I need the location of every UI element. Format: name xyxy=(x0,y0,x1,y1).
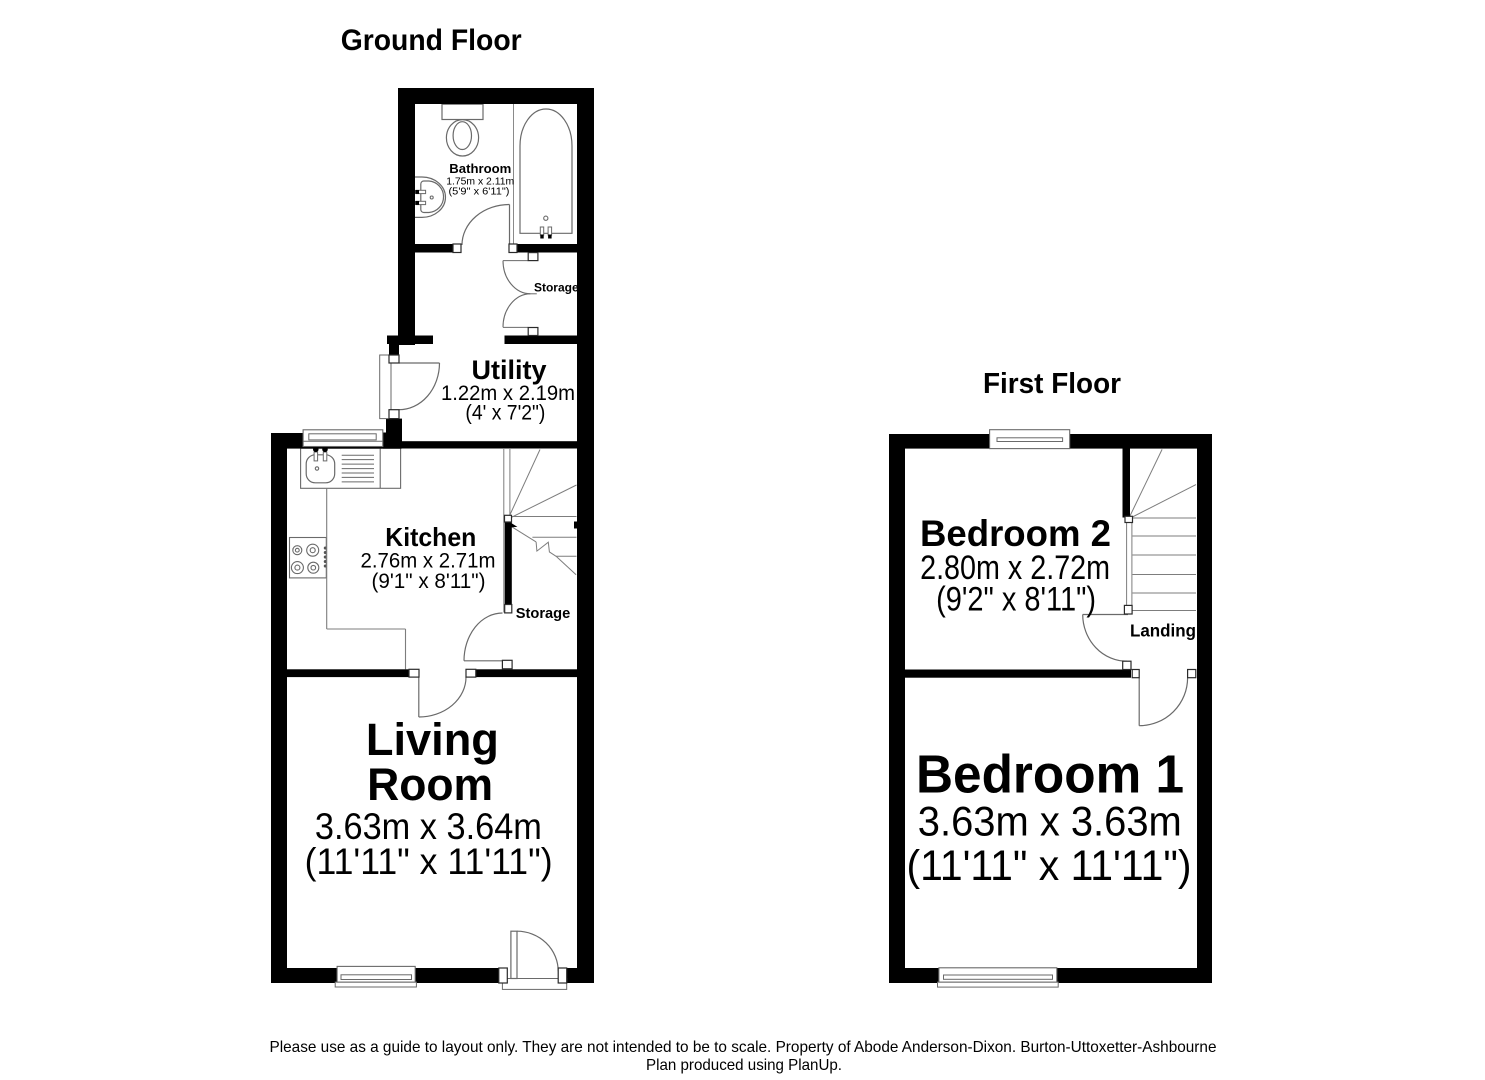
svg-text:Please use as a guide to layou: Please use as a guide to layout only. Th… xyxy=(270,1039,1217,1056)
svg-text:3.63m x 3.63m: 3.63m x 3.63m xyxy=(918,798,1182,845)
svg-text:(5'9" x 6'11"): (5'9" x 6'11") xyxy=(449,185,510,197)
svg-text:Room: Room xyxy=(367,759,493,810)
svg-text:First Floor: First Floor xyxy=(983,368,1121,400)
svg-text:(9'1" x 8'11"): (9'1" x 8'11") xyxy=(372,570,486,593)
svg-text:Landing: Landing xyxy=(1130,620,1196,640)
svg-text:Kitchen: Kitchen xyxy=(385,524,476,552)
svg-text:(9'2" x 8'11"): (9'2" x 8'11") xyxy=(936,581,1096,619)
svg-text:Ground Floor: Ground Floor xyxy=(341,24,522,57)
svg-text:Bedroom 2: Bedroom 2 xyxy=(920,512,1111,554)
svg-text:Utility: Utility xyxy=(472,355,547,385)
svg-text:Storage: Storage xyxy=(534,281,579,295)
svg-text:Storage: Storage xyxy=(516,606,571,622)
svg-text:Bathroom: Bathroom xyxy=(449,161,511,176)
svg-text:(11'11" x 11'11"): (11'11" x 11'11") xyxy=(907,842,1192,889)
svg-text:(11'11" x 11'11"): (11'11" x 11'11") xyxy=(305,841,553,882)
svg-text:(4' x 7'2"): (4' x 7'2") xyxy=(465,402,545,425)
svg-text:Plan produced using PlanUp.: Plan produced using PlanUp. xyxy=(646,1057,842,1074)
svg-text:Living: Living xyxy=(366,714,499,765)
svg-text:Bedroom 1: Bedroom 1 xyxy=(916,745,1184,805)
